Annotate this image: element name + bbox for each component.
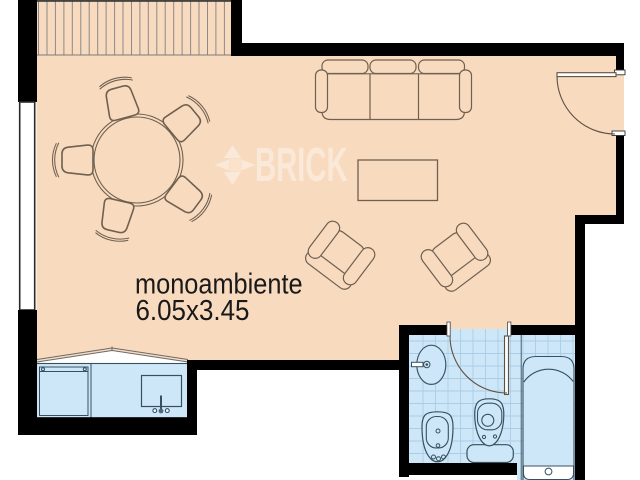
svg-text:BRICK: BRICK xyxy=(255,139,348,192)
svg-text:6.05x3.45: 6.05x3.45 xyxy=(136,293,250,326)
